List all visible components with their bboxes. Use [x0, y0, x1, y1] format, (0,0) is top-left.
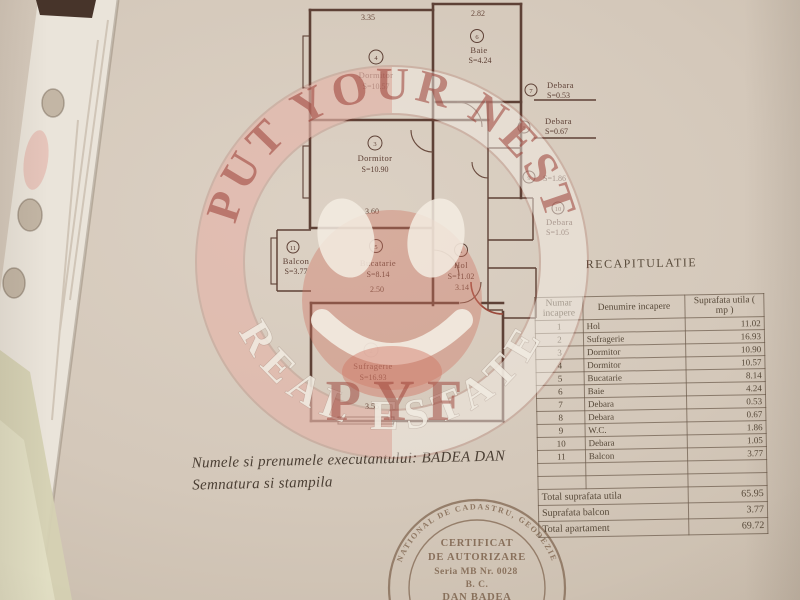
stamp-line-seria: Seria MB Nr. 0028 — [434, 567, 518, 577]
room-number: 5 — [374, 244, 377, 251]
room-area: S=16.93 — [360, 373, 387, 382]
room-number: 1 — [459, 248, 462, 255]
room-label-dormitor-4: 4 Dormitor S=10.57 — [359, 50, 394, 91]
room-name: Balcon — [283, 256, 310, 266]
total-value: 3.77 — [689, 502, 768, 519]
col-header-numar: Numar incapere — [535, 297, 583, 321]
dimension: 3.35 — [361, 13, 375, 22]
room-number: 8 — [522, 125, 525, 132]
total-row: Total apartament69.72 — [539, 518, 768, 538]
room-name: Baie — [470, 45, 487, 55]
stamp-line-name: DAN BADEA — [442, 592, 511, 600]
room-area: S=4.24 — [469, 56, 492, 65]
room-area: S=10.57 — [363, 82, 390, 91]
cell-nr: 3 — [536, 346, 584, 360]
dimension: 3.55 — [365, 402, 379, 411]
room-name: Debara — [546, 217, 573, 227]
stamp-line-bc: B. C. — [466, 580, 489, 590]
room-number: 6 — [475, 34, 479, 41]
cell-nr: 2 — [535, 333, 583, 347]
dimension: 3.14 — [455, 283, 469, 292]
stamp-line-autorizare: DE AUTORIZARE — [428, 552, 526, 563]
cell-nr: 4 — [536, 359, 584, 373]
room-label-hol-1: 1 Hol S=11.02 — [448, 244, 475, 282]
signature-line: Semnatura si stampila — [192, 470, 506, 494]
photographed-floorplan-document: 4 Dormitor S=10.57 6 Baie S=4.24 7 Debar… — [0, 0, 800, 600]
room-label-sufragerie-2: 2 Sufragerie S=16.93 — [353, 343, 392, 382]
room-number: 4 — [374, 55, 378, 62]
room-name: Dormitor — [358, 153, 393, 163]
dimension: 2.82 — [471, 9, 485, 18]
room-label-wc-9: 9 S=1.86 — [523, 171, 566, 183]
room-area: S=8.14 — [367, 270, 390, 279]
room-area: S=1.05 — [546, 228, 569, 237]
room-label-baie-6: 6 Baie S=4.24 — [469, 30, 492, 66]
punch-hole — [18, 199, 42, 231]
room-label-dormitor-3: 3 Dormitor S=10.90 — [358, 136, 393, 174]
room-area: S=3.77 — [285, 267, 308, 276]
room-number: 3 — [373, 141, 376, 148]
room-name: Sufragerie — [353, 361, 392, 371]
room-label-balcon-11: 11 Balcon S=3.77 — [283, 241, 310, 276]
room-label-debara-7: 7 Debara S=0.53 — [525, 80, 574, 100]
room-label-debara-8: 8 Debara S=0.67 — [518, 116, 572, 136]
room-area: S=1.86 — [543, 174, 566, 183]
cell-nr: 10 — [537, 437, 585, 451]
cell-nr: 6 — [536, 385, 584, 399]
recap-section: RECAPITULATIE Numar incapere Denumire in… — [534, 254, 775, 538]
room-name: Hol — [454, 260, 468, 270]
col-header-denumire: Denumire incapere — [583, 295, 686, 320]
total-value: 65.95 — [688, 486, 767, 503]
room-label-bucatarie-5: 5 Bucatarie S=8.14 — [360, 240, 396, 280]
dimension: 2.50 — [370, 285, 384, 294]
room-number: 7 — [529, 88, 533, 95]
room-number: 9 — [527, 175, 530, 182]
room-label-debara-10: 10 Debara S=1.05 — [546, 202, 573, 237]
cell-nr: 8 — [537, 411, 585, 425]
punch-hole — [42, 89, 64, 117]
dimension: 3.60 — [365, 207, 379, 216]
col-header-suprafata: Suprafata utila ( mp ) — [685, 294, 764, 318]
room-name: Debara — [547, 80, 574, 90]
cell-nr: 9 — [537, 424, 585, 438]
executant-notes: Numele si prenumele executantului: BADEA… — [192, 448, 506, 499]
room-area: S=11.02 — [448, 272, 475, 281]
room-number: 2 — [369, 348, 372, 355]
room-area: S=10.90 — [362, 165, 389, 174]
room-name: Dormitor — [359, 70, 394, 80]
stamp-line-certificat: CERTIFICAT — [441, 538, 514, 549]
cell-nr: 5 — [536, 372, 584, 386]
cell-nr: 1 — [535, 320, 583, 334]
total-label: Total apartament — [539, 519, 689, 538]
total-value: 69.72 — [689, 518, 768, 535]
room-name: Bucatarie — [360, 258, 396, 268]
sheet-protector-edge — [0, 0, 118, 600]
room-name: Debara — [545, 116, 572, 126]
room-number: 10 — [555, 206, 562, 213]
room-area: S=0.67 — [545, 127, 568, 136]
cell-nr: 7 — [537, 398, 585, 412]
room-area: S=0.53 — [547, 91, 570, 100]
cell-nr: 11 — [537, 450, 585, 464]
room-number: 11 — [290, 245, 296, 252]
punch-hole — [3, 268, 25, 298]
recap-title: RECAPITULATIE — [586, 254, 770, 272]
recap-table: Numar incapere Denumire incapere Suprafa… — [534, 293, 768, 538]
